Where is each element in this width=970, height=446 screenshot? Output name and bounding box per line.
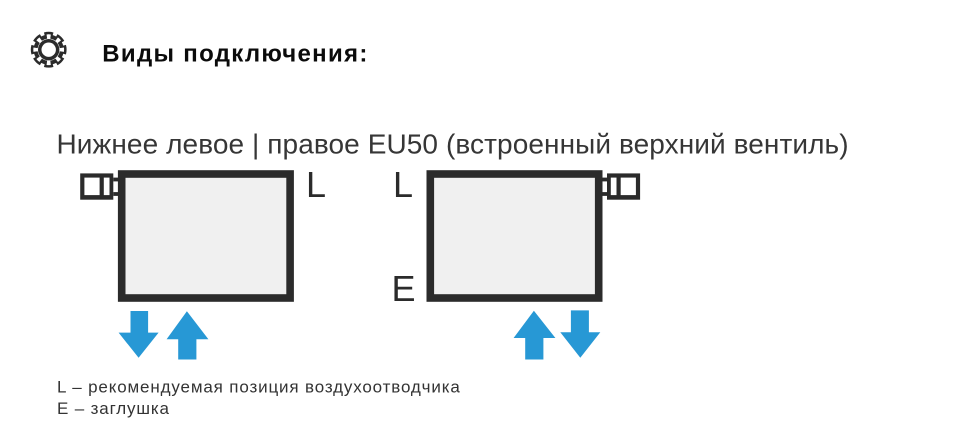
svg-text:E: E — [392, 268, 416, 309]
svg-text:Виды подключения:: Виды подключения: — [102, 41, 368, 68]
svg-text:L: L — [393, 164, 413, 205]
svg-text:L – рекомендуемая позиция возд: L – рекомендуемая позиция воздухоотводчи… — [57, 377, 461, 396]
svg-text:L: L — [306, 164, 326, 205]
svg-text:E – заглушка: E – заглушка — [57, 399, 170, 418]
svg-text:Нижнее левое | правое EU50 (вс: Нижнее левое | правое EU50 (встроенный в… — [57, 129, 849, 160]
